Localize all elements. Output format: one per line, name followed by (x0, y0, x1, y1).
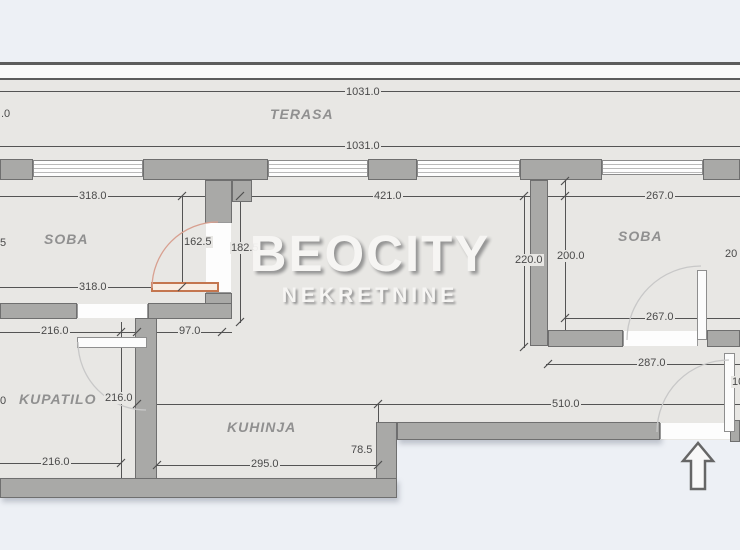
railing-white-band (0, 65, 740, 78)
wall-bottom (0, 478, 397, 498)
dim-terrace-bottom: 1031.0 (345, 140, 381, 152)
door-opening-soba-right (623, 331, 698, 346)
entrance-arrow-icon (683, 443, 713, 489)
dim-partial-right-top: 20 (724, 248, 738, 260)
dim-soba-right-bottom: 267.0 (645, 311, 675, 323)
wall-hall-right (148, 303, 232, 319)
dim-line-living-height (524, 196, 525, 348)
wall-step (376, 422, 397, 479)
window-2 (268, 160, 368, 177)
dim-partial-left-mid: 5 (0, 237, 7, 249)
dim-terrace-top: 1031.0 (345, 86, 381, 98)
entrance-opening (660, 423, 732, 439)
wall-entrance (397, 422, 660, 440)
room-label-soba-right: SOBA (618, 228, 662, 244)
door-leaf-kupatilo (77, 337, 147, 348)
door-leaf-entrance (724, 353, 735, 432)
dim-hall-passage: 97.0 (178, 325, 201, 337)
room-label-terasa: TERASA (270, 106, 334, 122)
wall-soba-left-upper (205, 180, 232, 223)
dim-soba-left-top: 318.0 (78, 190, 108, 202)
railing-inner-line (0, 78, 740, 80)
railing-outer-line (0, 62, 740, 65)
dim-kupatilo-depth: 216.0 (104, 392, 134, 404)
wall-top-1 (0, 159, 33, 180)
door-opening-kupatilo (77, 304, 148, 318)
wall-soba-left-corner (232, 180, 252, 202)
wall-hall-left (0, 303, 77, 319)
room-label-soba-left: SOBA (44, 231, 88, 247)
dim-hall: 287.0 (637, 357, 667, 369)
wall-top-5 (703, 159, 740, 180)
dim-kupatilo-bottom: 216.0 (41, 456, 71, 468)
dim-line-rooms-top (0, 196, 740, 197)
wall-top-2 (143, 159, 268, 180)
dim-line-open-area (137, 404, 740, 405)
door-leaf-soba-left (151, 282, 219, 292)
dim-soba-right-top: 267.0 (645, 190, 675, 202)
dim-kitchen-recess: 78.5 (350, 444, 373, 456)
floor-plan: 1031.0 1031.0 .0 318.0 318.0 421.0 267.0… (0, 0, 740, 550)
dim-soba-right-height: 200.0 (556, 250, 586, 262)
dim-kupatilo-top: 216.0 (40, 325, 70, 337)
dim-partial-left-bottom: 0 (0, 395, 7, 407)
window-3 (417, 160, 520, 177)
window-4 (602, 160, 703, 175)
room-label-kuhinja: KUHINJA (227, 419, 296, 435)
window-1 (33, 160, 143, 177)
room-label-kupatilo: KUPATILO (19, 391, 96, 407)
wall-top-3 (368, 159, 417, 180)
wall-soba-right-bottom-1 (548, 330, 623, 347)
dim-line-living-depth (240, 196, 241, 323)
dim-kitchen-bottom: 295.0 (250, 458, 280, 470)
dim-living-depth: 182.5 (230, 242, 260, 254)
dim-open-area: 510.0 (551, 398, 581, 410)
wall-soba-right-bottom-2 (707, 330, 740, 347)
wall-top-4 (520, 159, 602, 180)
dim-soba-left-bottom: 318.0 (78, 281, 108, 293)
dim-partial-right-mid: 10 (731, 376, 740, 388)
dim-living-top: 421.0 (373, 190, 403, 202)
door-leaf-soba-right (697, 270, 707, 340)
dim-partial-left-top: .0 (0, 108, 11, 120)
dim-soba-left-depth: 162.5 (183, 236, 213, 248)
dim-living-height: 220.0 (514, 254, 544, 266)
